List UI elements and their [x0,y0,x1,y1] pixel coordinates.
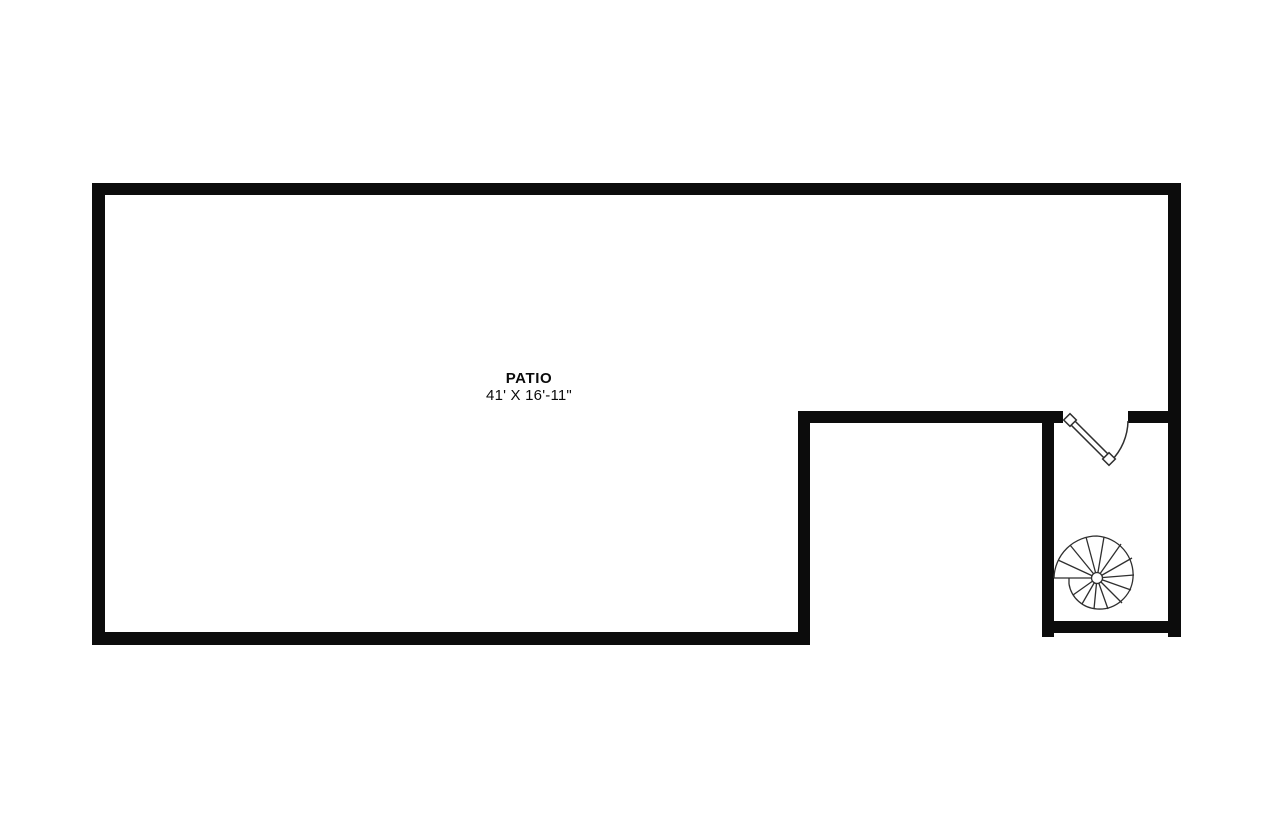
wall-stair-bottom [1042,621,1181,633]
wall-notch-top [798,411,1063,423]
stair-entry-edge [1054,578,1092,584]
door-arc [1111,421,1128,461]
door-leaf [1068,418,1111,461]
patio-walls [92,183,1181,645]
wall-notch-left [798,411,810,645]
wall-top [92,183,1181,195]
wall-bottom-main [92,632,810,645]
stair-spiral-outline [1054,536,1133,609]
spiral-staircase [1054,536,1134,609]
door-swing [1064,414,1128,466]
wall-stair-left [1042,411,1054,637]
wall-left [92,183,105,645]
room-label-block: PATIO 41' X 16'-11" [379,370,679,404]
room-dimensions-label: 41' X 16'-11" [379,387,679,404]
floorplan-canvas [0,0,1280,828]
stair-center-post [1092,573,1103,584]
room-name-label: PATIO [379,370,679,387]
wall-right [1168,183,1181,637]
floorplan-page: PATIO 41' X 16'-11" [0,0,1280,828]
